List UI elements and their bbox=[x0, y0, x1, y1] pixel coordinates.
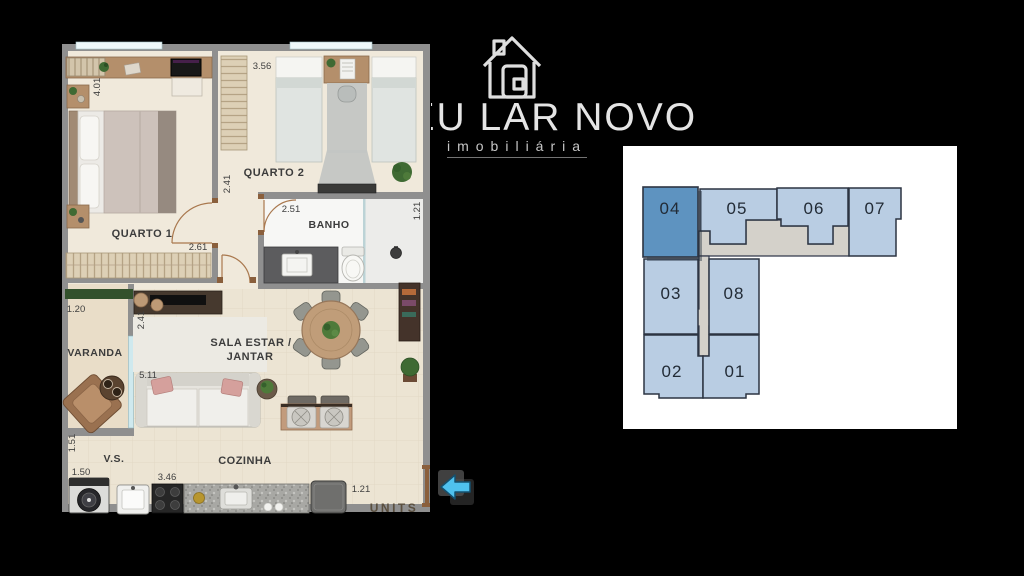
label-quarto2: QUARTO 2 bbox=[244, 167, 305, 179]
label-cozinha: COZINHA bbox=[218, 455, 272, 467]
label-quarto1: QUARTO 1 bbox=[112, 228, 173, 240]
unit-05-label[interactable]: 05 bbox=[727, 199, 748, 218]
dim-sala-width: 5.11 bbox=[139, 370, 157, 381]
brand-tagline: imobiliária bbox=[447, 138, 587, 158]
unit-02-label[interactable]: 02 bbox=[662, 362, 683, 381]
dim-banho-width: 2.51 bbox=[282, 204, 301, 215]
unit-location-panel: 04 05 06 07 03 08 02 01 bbox=[623, 146, 957, 429]
dim-sala-height: 2.41 bbox=[136, 311, 147, 330]
unit-map: 04 05 06 07 03 08 02 01 bbox=[623, 146, 957, 429]
dim-vs-width: 1.50 bbox=[72, 467, 91, 478]
floorplan-watermark: UNITS bbox=[370, 501, 419, 515]
label-sala-line2: JANTAR bbox=[227, 351, 274, 363]
unit-04-highlighted[interactable] bbox=[643, 187, 698, 257]
back-arrow-button[interactable] bbox=[434, 466, 476, 508]
dim-cozinha-width: 3.46 bbox=[158, 472, 177, 483]
floor-plan: QUARTO 1 4.01 2.61 QUARTO 2 3.56 2.41 BA… bbox=[61, 40, 431, 516]
dim-vs-height: 1.51 bbox=[67, 434, 78, 453]
page: MEU LAR NOVO imobiliária bbox=[0, 0, 1024, 576]
label-sala-line1: SALA ESTAR / bbox=[210, 337, 291, 349]
dim-banho-height: 1.21 bbox=[412, 202, 423, 221]
unit-08-label[interactable]: 08 bbox=[724, 284, 745, 303]
house-icon bbox=[476, 30, 548, 104]
unit-07-label[interactable]: 07 bbox=[865, 199, 886, 218]
label-varanda: VARANDA bbox=[67, 347, 122, 359]
balcony-hedge bbox=[65, 289, 133, 299]
balcony-glass-door bbox=[129, 336, 134, 428]
dim-varanda-width: 1.20 bbox=[67, 304, 86, 315]
label-banho: BANHO bbox=[309, 219, 350, 231]
back-arrow-icon bbox=[434, 466, 476, 508]
dim-cozinha-depth: 1.21 bbox=[352, 484, 371, 495]
dim-quarto2-width: 3.56 bbox=[253, 61, 272, 72]
unit-06-label[interactable]: 06 bbox=[804, 199, 825, 218]
unit-04-label[interactable]: 04 bbox=[660, 199, 681, 218]
dim-quarto1-width: 2.61 bbox=[189, 242, 208, 253]
unit-01-label[interactable]: 01 bbox=[725, 362, 746, 381]
dim-hall-width: 2.41 bbox=[222, 175, 233, 194]
label-vs: V.S. bbox=[104, 453, 125, 465]
unit-03-label[interactable]: 03 bbox=[661, 284, 682, 303]
dim-quarto1-height: 4.01 bbox=[92, 78, 103, 97]
